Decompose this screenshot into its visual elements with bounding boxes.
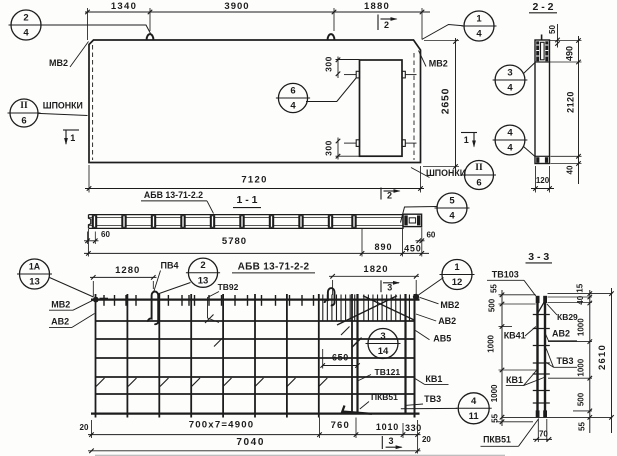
- svg-text:500: 500: [487, 298, 496, 312]
- svg-text:760: 760: [331, 420, 350, 431]
- svg-text:ТВ3: ТВ3: [556, 356, 573, 366]
- svg-text:АБВ 13-71-2.2: АБВ 13-71-2.2: [144, 190, 203, 200]
- svg-text:1А: 1А: [29, 261, 41, 271]
- svg-text:650: 650: [332, 352, 349, 362]
- svg-text:1 - 1: 1 - 1: [236, 194, 257, 206]
- svg-text:1: 1: [70, 133, 75, 143]
- svg-text:2610: 2610: [597, 344, 608, 370]
- svg-text:40: 40: [576, 295, 585, 304]
- svg-text:60: 60: [101, 230, 110, 239]
- svg-text:3: 3: [507, 68, 512, 79]
- svg-text:55: 55: [490, 284, 499, 293]
- svg-text:1000: 1000: [490, 384, 499, 402]
- svg-text:ПКВ51: ПКВ51: [371, 392, 398, 402]
- svg-text:15: 15: [576, 283, 585, 292]
- svg-text:11: 11: [469, 411, 480, 422]
- svg-text:ТВ92: ТВ92: [218, 282, 239, 292]
- svg-text:1280: 1280: [115, 265, 140, 276]
- svg-text:1010: 1010: [376, 422, 399, 432]
- svg-text:3900: 3900: [224, 1, 249, 12]
- svg-text:70: 70: [539, 429, 548, 438]
- svg-text:II: II: [20, 101, 28, 111]
- svg-text:700х7=4900: 700х7=4900: [189, 420, 255, 431]
- svg-text:3 - 3: 3 - 3: [528, 251, 549, 263]
- svg-text:450: 450: [404, 243, 421, 253]
- svg-text:ШПОНКИ: ШПОНКИ: [426, 168, 466, 178]
- svg-text:АБВ 13-71-2-2: АБВ 13-71-2-2: [238, 261, 310, 272]
- svg-text:4: 4: [449, 211, 455, 222]
- svg-text:1820: 1820: [363, 264, 388, 275]
- svg-text:500: 500: [576, 392, 585, 406]
- svg-text:МВ2: МВ2: [49, 58, 68, 68]
- svg-text:II: II: [475, 163, 483, 173]
- svg-text:3: 3: [388, 436, 393, 446]
- svg-text:КВ1: КВ1: [425, 374, 442, 384]
- svg-text:55: 55: [578, 422, 587, 431]
- svg-text:4: 4: [23, 28, 29, 39]
- svg-text:2120: 2120: [565, 91, 575, 113]
- svg-text:АВ2: АВ2: [51, 317, 69, 327]
- svg-text:890: 890: [374, 242, 392, 252]
- svg-text:АВ5: АВ5: [433, 334, 451, 344]
- svg-text:2 - 2: 2 - 2: [532, 1, 553, 13]
- svg-text:ТВ121: ТВ121: [375, 367, 401, 377]
- svg-text:4: 4: [507, 143, 513, 154]
- svg-text:КВ41: КВ41: [504, 330, 526, 340]
- svg-text:4: 4: [290, 101, 296, 112]
- svg-text:6: 6: [21, 116, 26, 127]
- svg-text:АВ2: АВ2: [438, 316, 456, 326]
- svg-text:4: 4: [507, 128, 513, 139]
- svg-text:1: 1: [454, 262, 460, 273]
- svg-text:6: 6: [290, 86, 295, 97]
- svg-text:330: 330: [405, 423, 422, 433]
- svg-text:1: 1: [464, 135, 469, 145]
- svg-text:2650: 2650: [439, 88, 451, 115]
- svg-text:МВ2: МВ2: [440, 300, 459, 310]
- svg-text:ТВ3: ТВ3: [424, 394, 441, 404]
- svg-text:ПКВ51: ПКВ51: [483, 435, 511, 445]
- svg-text:12: 12: [452, 277, 463, 288]
- svg-text:20: 20: [422, 435, 431, 444]
- svg-text:2: 2: [384, 20, 389, 30]
- svg-text:МВ2: МВ2: [51, 299, 70, 309]
- svg-text:4: 4: [471, 396, 477, 407]
- svg-text:АВ2: АВ2: [552, 328, 570, 338]
- svg-text:2: 2: [23, 13, 28, 24]
- svg-text:1: 1: [476, 14, 482, 25]
- svg-text:13: 13: [198, 275, 209, 286]
- svg-text:13: 13: [29, 277, 40, 288]
- svg-text:7040: 7040: [236, 437, 265, 448]
- svg-text:ТВ103: ТВ103: [492, 270, 519, 280]
- svg-text:14: 14: [378, 346, 389, 357]
- svg-text:3: 3: [387, 282, 392, 292]
- svg-text:490: 490: [564, 46, 574, 61]
- svg-text:ШПОНКИ: ШПОНКИ: [43, 101, 83, 111]
- svg-text:7120: 7120: [241, 175, 267, 186]
- svg-text:1880: 1880: [364, 1, 390, 12]
- svg-text:120: 120: [536, 176, 550, 185]
- svg-text:300: 300: [323, 56, 333, 72]
- svg-text:МВ2: МВ2: [429, 59, 448, 69]
- svg-text:1000: 1000: [577, 318, 586, 336]
- svg-text:5780: 5780: [222, 236, 247, 247]
- svg-text:20: 20: [80, 423, 89, 432]
- svg-text:60: 60: [426, 230, 435, 239]
- svg-text:2: 2: [387, 190, 392, 200]
- svg-text:ПВ4: ПВ4: [161, 261, 179, 271]
- svg-text:50: 50: [548, 25, 557, 34]
- svg-text:6: 6: [476, 178, 481, 189]
- svg-text:5: 5: [449, 196, 455, 207]
- svg-text:КВ29: КВ29: [557, 312, 578, 322]
- svg-text:3: 3: [380, 331, 385, 342]
- svg-text:2: 2: [200, 260, 205, 271]
- svg-text:1000: 1000: [577, 358, 586, 376]
- svg-text:4: 4: [476, 29, 482, 40]
- svg-text:КВ1: КВ1: [506, 375, 523, 385]
- svg-text:1340: 1340: [111, 1, 137, 12]
- svg-text:1000: 1000: [487, 334, 496, 352]
- svg-text:40: 40: [566, 165, 575, 174]
- svg-text:4: 4: [507, 83, 513, 94]
- svg-text:300: 300: [323, 140, 333, 156]
